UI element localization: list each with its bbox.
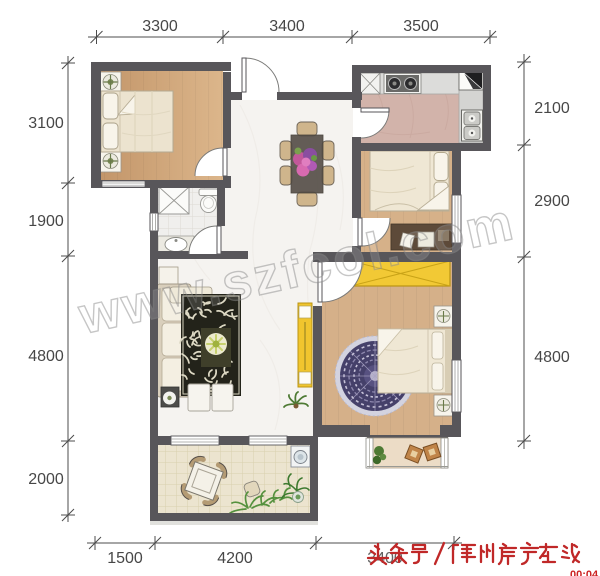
- svg-text:3100: 3100: [28, 115, 64, 132]
- svg-text:3500: 3500: [403, 18, 439, 35]
- svg-text:2900: 2900: [534, 193, 570, 210]
- svg-text:4800: 4800: [28, 348, 64, 365]
- svg-text:1500: 1500: [107, 550, 143, 567]
- svg-text:2100: 2100: [534, 100, 570, 117]
- svg-text:3300: 3300: [142, 18, 178, 35]
- svg-text:4200: 4200: [217, 550, 253, 567]
- svg-text:4800: 4800: [534, 349, 570, 366]
- svg-text:00:04: 00:04: [570, 569, 599, 576]
- svg-text:1900: 1900: [28, 213, 64, 230]
- svg-text:3400: 3400: [269, 18, 305, 35]
- svg-text:2000: 2000: [28, 471, 64, 488]
